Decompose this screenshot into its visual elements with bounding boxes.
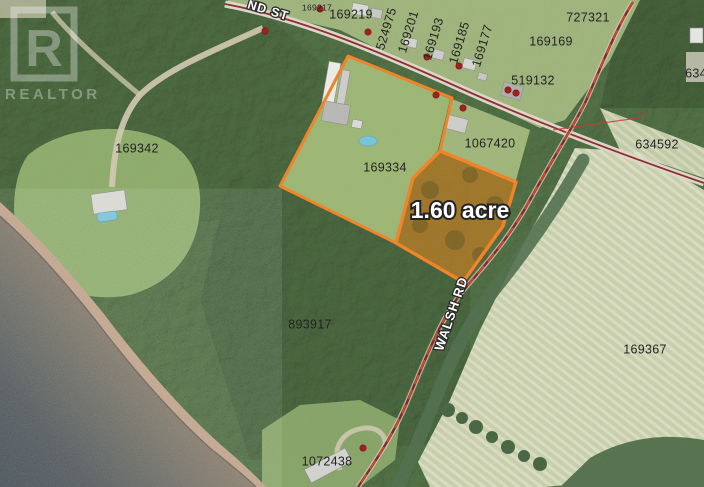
map-canvas: 1692171692195249751692011691931691851691… [0,0,704,487]
aerial-parcel-map: 1692171692195249751692011691931691851691… [0,0,704,487]
photo-grain [0,0,704,487]
